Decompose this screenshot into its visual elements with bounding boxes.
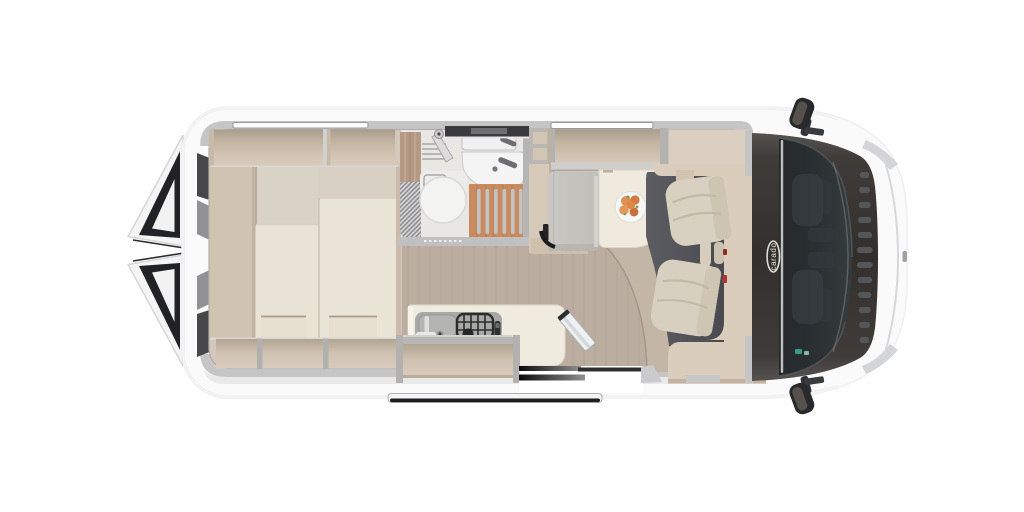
svg-text:carado: carado — [769, 242, 778, 270]
